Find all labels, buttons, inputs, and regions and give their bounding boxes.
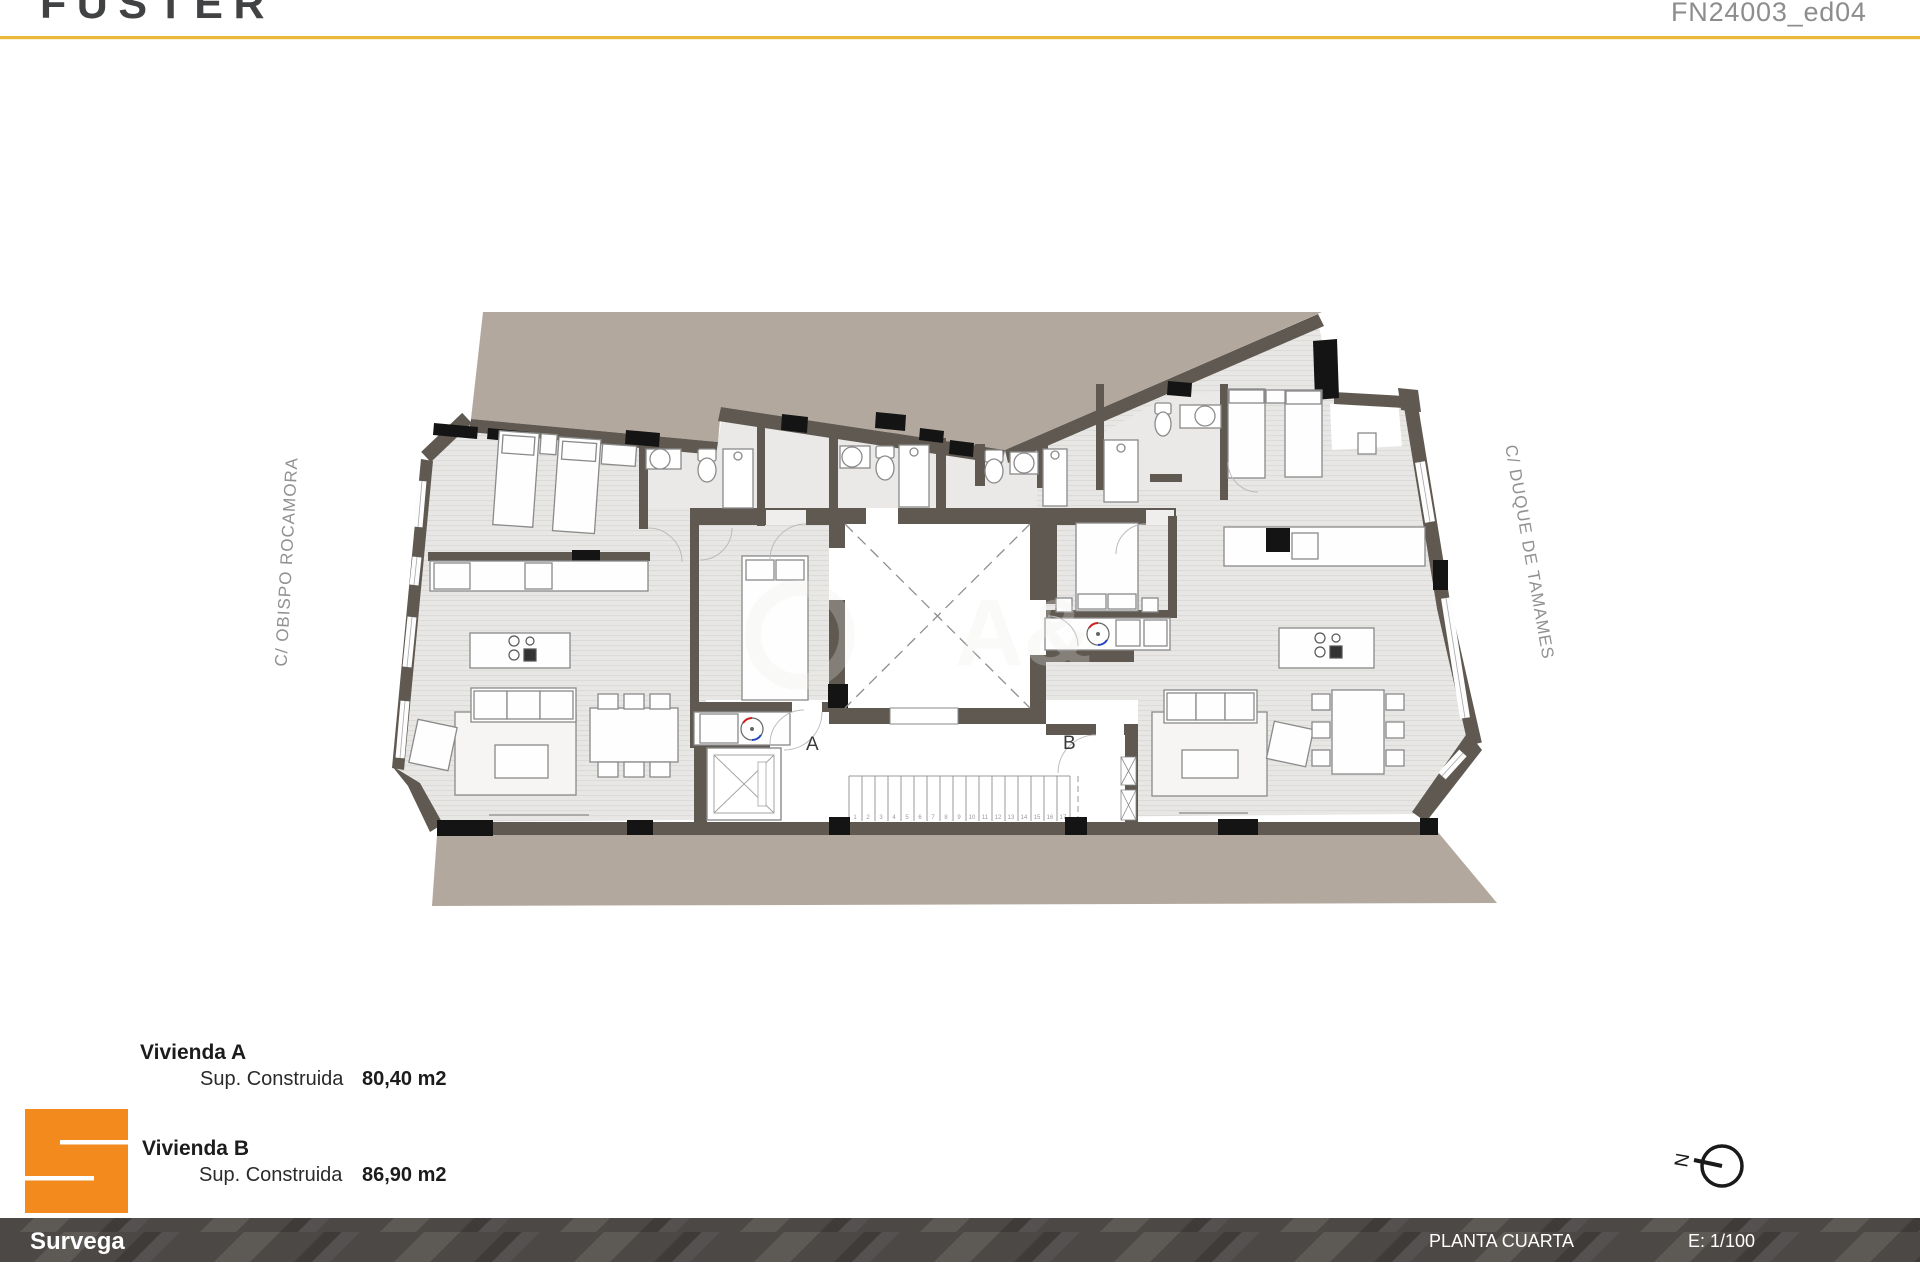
svg-text:14: 14 xyxy=(1021,815,1028,821)
svg-text:FUSTER: FUSTER xyxy=(40,0,275,28)
svg-text:Sup. Construida: Sup. Construida xyxy=(200,1068,344,1090)
svg-text:12: 12 xyxy=(995,815,1002,821)
svg-text:FN24003_ed04: FN24003_ed04 xyxy=(1671,0,1867,27)
svg-text:A&: A& xyxy=(955,580,1092,686)
svg-text:Sup. Construida: Sup. Construida xyxy=(199,1164,343,1186)
svg-text:10: 10 xyxy=(969,815,976,821)
svg-text:11: 11 xyxy=(982,815,989,821)
svg-text:B: B xyxy=(1063,733,1076,754)
svg-text:C/ DUQUE DE TAMAMES: C/ DUQUE DE TAMAMES xyxy=(1501,443,1558,661)
svg-text:86,90 m2: 86,90 m2 xyxy=(362,1164,447,1186)
svg-text:Survega: Survega xyxy=(30,1228,125,1255)
svg-text:PLANTA CUARTA: PLANTA CUARTA xyxy=(1429,1231,1574,1251)
svg-text:Vivienda A: Vivienda A xyxy=(140,1041,246,1064)
svg-text:C/ OBISPO ROCAMORA: C/ OBISPO ROCAMORA xyxy=(272,456,302,666)
svg-text:A: A xyxy=(806,734,819,755)
svg-text:13: 13 xyxy=(1008,815,1015,821)
svg-text:E: 1/100: E: 1/100 xyxy=(1688,1231,1755,1251)
svg-text:16: 16 xyxy=(1047,815,1054,821)
svg-text:80,40 m2: 80,40 m2 xyxy=(362,1068,447,1090)
svg-text:N: N xyxy=(1671,1152,1694,1169)
svg-text:15: 15 xyxy=(1034,815,1041,821)
svg-text:Vivienda B: Vivienda B xyxy=(142,1137,249,1160)
